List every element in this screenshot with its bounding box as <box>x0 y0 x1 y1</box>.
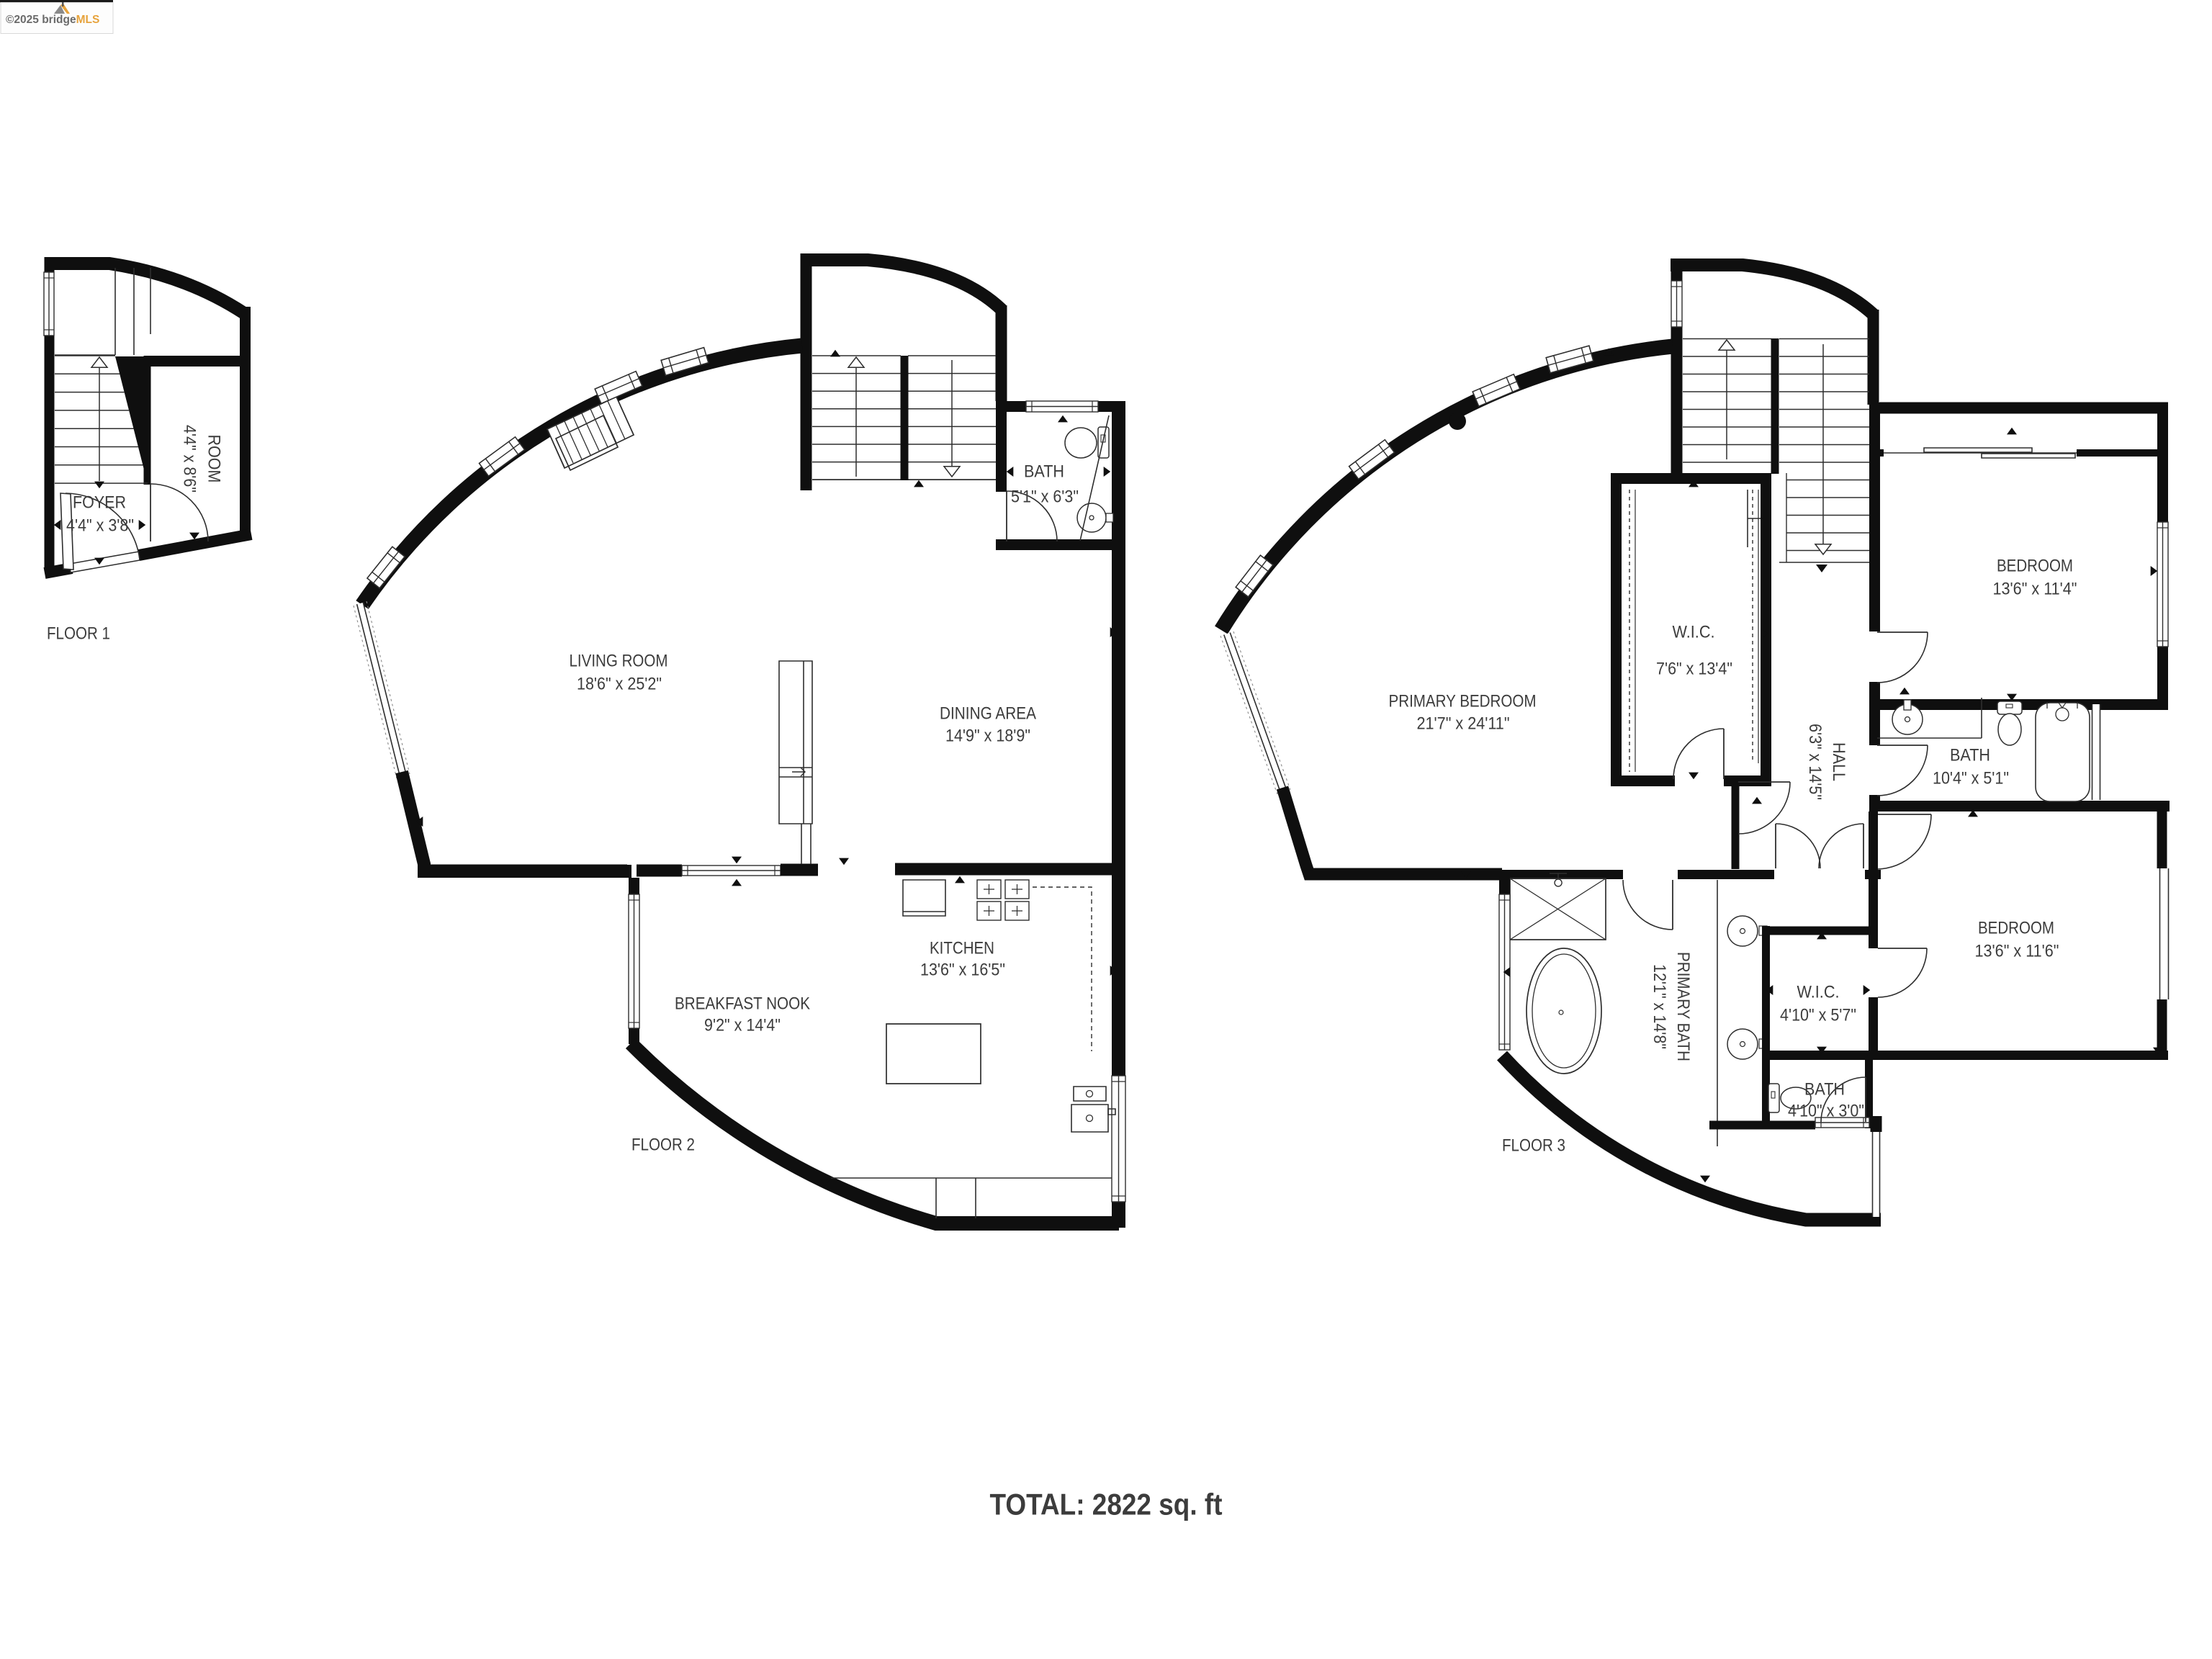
svg-text:BREAKFAST NOOK: BREAKFAST NOOK <box>675 994 811 1014</box>
svg-text:W.I.C.: W.I.C. <box>1797 983 1840 1002</box>
svg-text:6'3" x 14'5": 6'3" x 14'5" <box>1805 724 1825 800</box>
svg-text:HALL: HALL <box>1829 742 1848 781</box>
svg-text:FLOOR 2: FLOOR 2 <box>631 1136 695 1155</box>
svg-text:BATH: BATH <box>1950 746 1990 765</box>
svg-text:PRIMARY BEDROOM: PRIMARY BEDROOM <box>1389 692 1537 711</box>
svg-text:ROOM: ROOM <box>204 435 223 483</box>
svg-text:14'9" x 18'9": 14'9" x 18'9" <box>945 727 1030 746</box>
svg-text:DINING AREA: DINING AREA <box>940 704 1037 724</box>
svg-text:13'6" x 11'6": 13'6" x 11'6" <box>1975 942 2059 961</box>
svg-text:4'10" x 5'7": 4'10" x 5'7" <box>1780 1006 1856 1025</box>
svg-text:21'7" x 24'11": 21'7" x 24'11" <box>1417 714 1510 734</box>
svg-text:7'6" x 13'4": 7'6" x 13'4" <box>1656 660 1732 679</box>
svg-text:10'4" x 5'1": 10'4" x 5'1" <box>1933 769 2009 788</box>
svg-text:13'6" x 11'4": 13'6" x 11'4" <box>1993 580 2077 599</box>
svg-text:5'1" x 6'3": 5'1" x 6'3" <box>1011 487 1079 507</box>
svg-text:FLOOR 3: FLOOR 3 <box>1502 1136 1565 1156</box>
svg-text:12'1" x 14'8": 12'1" x 14'8" <box>1650 964 1669 1049</box>
svg-text:18'6" x 25'2": 18'6" x 25'2" <box>577 675 662 694</box>
svg-text:FLOOR 1: FLOOR 1 <box>47 624 110 644</box>
svg-text:BEDROOM: BEDROOM <box>1997 557 2073 576</box>
svg-text:4'4" x 3'8": 4'4" x 3'8" <box>66 516 134 536</box>
svg-text:©2025 bridgeMLS: ©2025 bridgeMLS <box>6 14 99 26</box>
svg-text:4'10" x 3'0": 4'10" x 3'0" <box>1788 1102 1864 1121</box>
svg-text:9'2" x 14'4": 9'2" x 14'4" <box>704 1016 781 1035</box>
svg-text:BATH: BATH <box>1024 462 1064 482</box>
svg-text:TOTAL: 2822 sq. ft: TOTAL: 2822 sq. ft <box>990 1488 1223 1521</box>
svg-text:LIVING ROOM: LIVING ROOM <box>570 652 668 671</box>
svg-text:W.I.C.: W.I.C. <box>1673 623 1715 642</box>
svg-text:BEDROOM: BEDROOM <box>1978 919 2054 938</box>
svg-text:PRIMARY BATH: PRIMARY BATH <box>1673 952 1693 1061</box>
svg-text:4'4" x 8'6": 4'4" x 8'6" <box>179 425 199 493</box>
svg-text:BATH: BATH <box>1804 1080 1845 1100</box>
svg-text:13'6" x 16'5": 13'6" x 16'5" <box>920 961 1005 980</box>
svg-text:KITCHEN: KITCHEN <box>930 939 994 958</box>
svg-text:FOYER: FOYER <box>73 493 126 513</box>
